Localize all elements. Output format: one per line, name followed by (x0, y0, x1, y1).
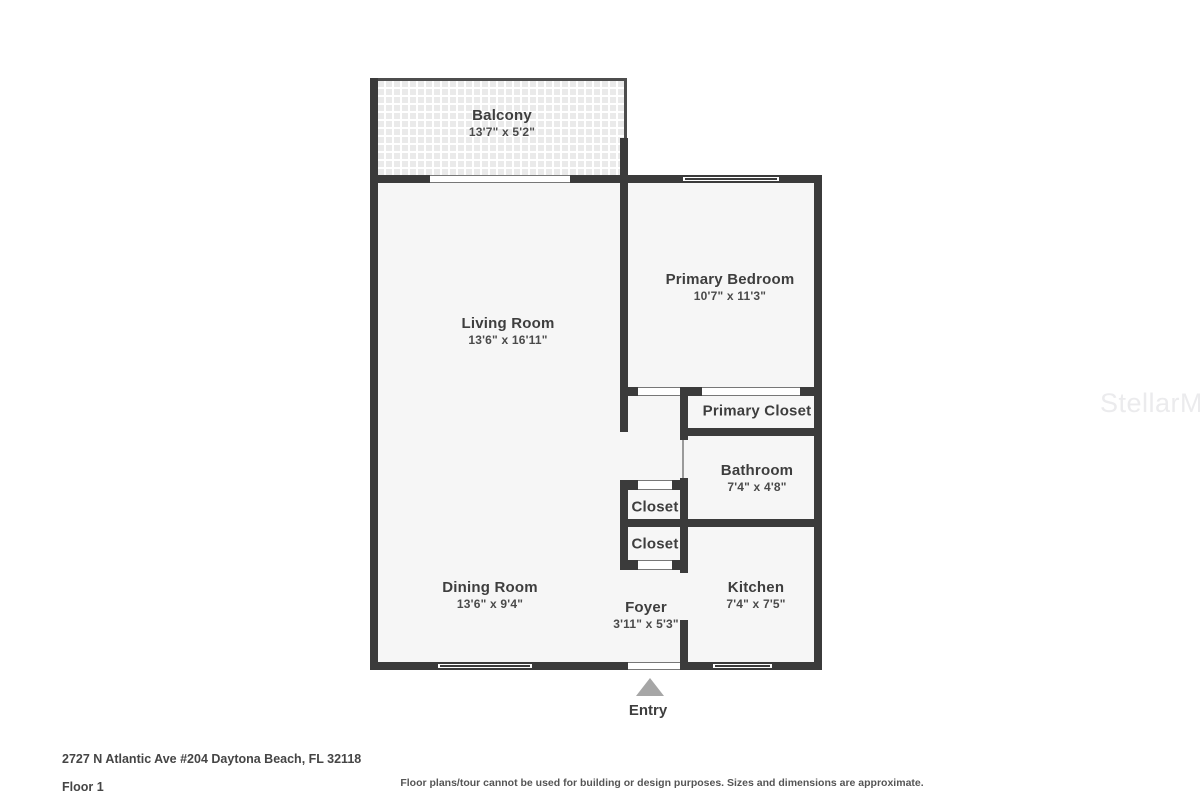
stellar-mls-watermark: StellarMLS (1100, 388, 1200, 419)
bedroom-door-opening (638, 387, 680, 396)
bedroom-south-wall-segment (800, 387, 814, 396)
room-label-bathroom: Bathroom 7'4" x 4'8" (721, 461, 793, 495)
bedroom-window (683, 175, 779, 183)
room-name: Kitchen (726, 578, 785, 597)
bathroom-west-wall (680, 396, 688, 440)
kitchen-west-wall (680, 620, 688, 670)
room-name: Primary Bedroom (666, 270, 795, 289)
room-name: Dining Room (442, 578, 538, 597)
closet2-door-cap (620, 560, 638, 570)
balcony-left-wall (370, 78, 378, 175)
balcony-right-line (624, 78, 627, 140)
left-exterior-wall (370, 175, 378, 670)
room-name: Closet (631, 498, 678, 517)
floor-number: Floor 1 (62, 780, 104, 794)
bottom-wall-segment (370, 662, 438, 670)
room-dims: 7'4" x 4'8" (721, 480, 793, 495)
room-dims: 13'7" x 5'2" (469, 125, 535, 140)
bathroom-south-wall (620, 519, 814, 527)
disclaimer-text: Floor plans/tour cannot be used for buil… (400, 777, 923, 789)
room-dims: 13'6" x 9'4" (442, 597, 538, 612)
closet1-door-cap (620, 480, 638, 490)
room-name: Foyer (613, 598, 679, 617)
room-label-bedroom: Primary Bedroom 10'7" x 11'3" (666, 270, 795, 304)
dining-window (438, 662, 532, 670)
entry-door-opening (628, 662, 682, 670)
floor-plan-canvas: Balcony 13'7" x 5'2" Living Room 13'6" x… (0, 0, 1200, 800)
balcony-top-line (370, 78, 627, 81)
room-name: Bathroom (721, 461, 793, 480)
primary-closet-door-opening (702, 387, 800, 396)
entry-label: Entry (629, 702, 667, 719)
closet1-door-opening (638, 480, 672, 490)
room-label-closet1: Closet (631, 498, 678, 517)
closet1-door-cap (672, 480, 688, 490)
room-name: Living Room (461, 314, 554, 333)
balcony-right-wall (620, 138, 628, 178)
room-name: Primary Closet (703, 402, 812, 421)
kitchen-west-wall (680, 527, 688, 573)
room-label-living: Living Room 13'6" x 16'11" (461, 314, 554, 348)
entry-arrow-icon (636, 678, 664, 696)
bathroom-door-line (682, 440, 684, 478)
room-dims: 10'7" x 11'3" (666, 289, 795, 304)
top-wall-segment (370, 175, 430, 183)
bottom-wall-segment (772, 662, 822, 670)
room-dims: 3'11" x 5'3" (613, 617, 679, 632)
property-address: 2727 N Atlantic Ave #204 Daytona Beach, … (62, 752, 361, 766)
room-label-dining: Dining Room 13'6" x 9'4" (442, 578, 538, 612)
room-name: Balcony (469, 106, 535, 125)
bedroom-south-wall-segment (680, 387, 702, 396)
room-label-foyer: Foyer 3'11" x 5'3" (613, 598, 679, 632)
primary-closet-bottom-wall (682, 428, 814, 436)
room-label-balcony: Balcony 13'7" x 5'2" (469, 106, 535, 140)
room-label-kitchen: Kitchen 7'4" x 7'5" (726, 578, 785, 612)
room-name: Closet (631, 535, 678, 554)
closet2-door-opening (638, 560, 672, 570)
bedroom-south-wall-segment (628, 387, 638, 396)
balcony-door-opening (430, 175, 570, 183)
room-label-closet2: Closet (631, 535, 678, 554)
kitchen-window (713, 662, 772, 670)
bottom-wall-segment (532, 662, 628, 670)
right-exterior-wall (814, 175, 822, 670)
living-bedroom-divider-wall (620, 175, 628, 432)
room-label-primary-closet: Primary Closet (703, 402, 812, 421)
room-dims: 7'4" x 7'5" (726, 597, 785, 612)
room-dims: 13'6" x 16'11" (461, 333, 554, 348)
